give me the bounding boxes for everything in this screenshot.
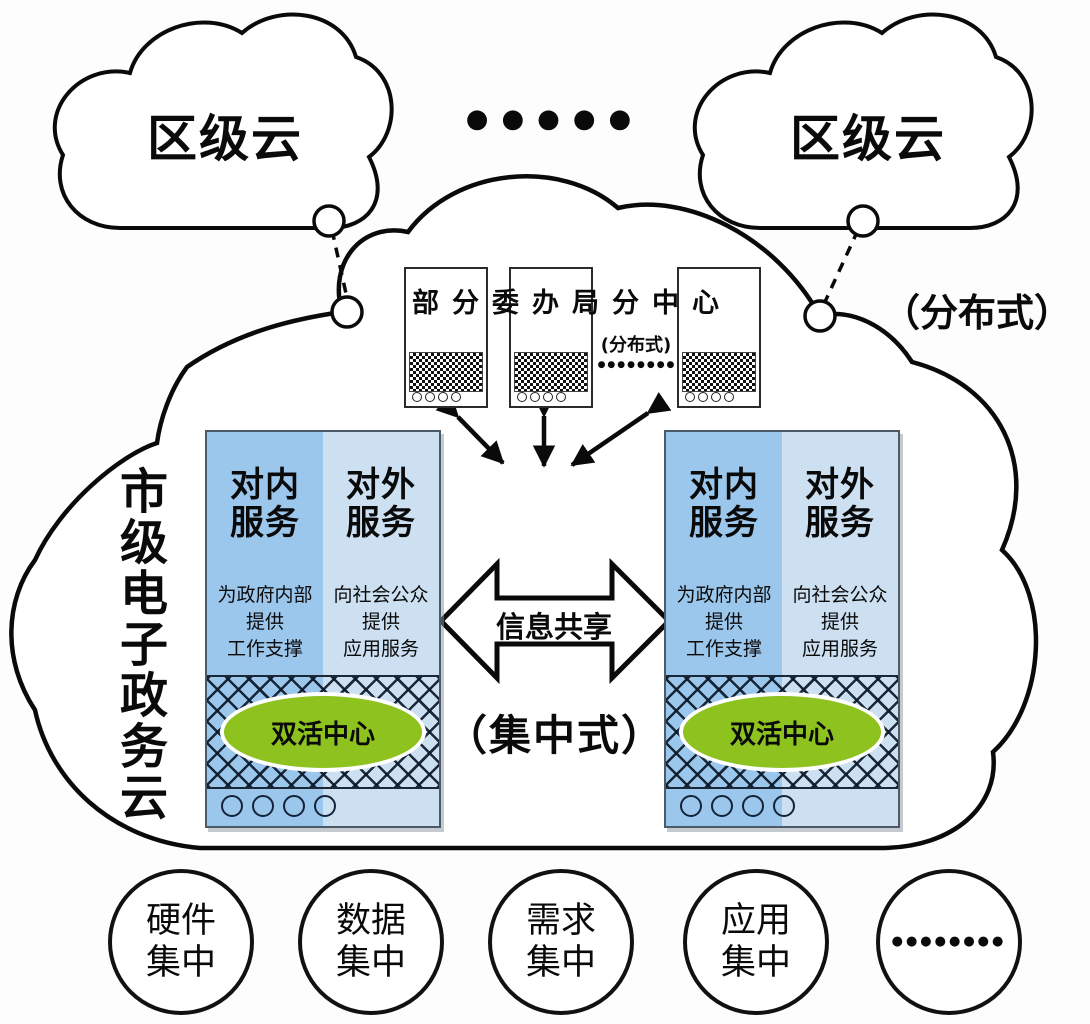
ellipsis-dots: ●●●●●●●● [592, 360, 682, 370]
server-led-dots [517, 392, 566, 402]
server-hatch-band [682, 352, 756, 392]
internal-service-desc: 为政府内部 提供 工作支撑 [207, 582, 323, 663]
ring-circle-icon [283, 795, 305, 817]
dual-active-center-badge: 双活中心 [220, 692, 426, 772]
server-hatch-band [409, 352, 483, 392]
ring-circle-icon [711, 795, 733, 817]
server-led-dots [412, 392, 461, 402]
distributed-outer-label: （分布式） [868, 282, 1086, 337]
subcenter-distributed-label: (分布式) [588, 331, 684, 357]
connector-node [848, 206, 878, 236]
led-circle-icon [556, 392, 566, 402]
connector-node [314, 206, 344, 236]
panel-footer-rings [221, 795, 336, 817]
service-panel-right: 对内 服务 对外 服务 为政府内部 提供 工作支撑 向社会公众 提供 应用服务 … [664, 430, 900, 828]
service-panel-left: 对内 服务 对外 服务 为政府内部 提供 工作支撑 向社会公众 提供 应用服务 … [205, 430, 441, 828]
external-service-title: 对外 服务 [323, 466, 439, 542]
bottom-circle-application: 应用 集中 [683, 869, 829, 1015]
led-circle-icon [711, 392, 721, 402]
server-led-dots [685, 392, 734, 402]
internal-service-title: 对内 服务 [207, 466, 323, 542]
internal-service-desc: 为政府内部 提供 工作支撑 [666, 582, 782, 663]
led-circle-icon [685, 392, 695, 402]
internal-service-title: 对内 服务 [666, 466, 782, 542]
ring-circle-icon [773, 795, 795, 817]
led-circle-icon [530, 392, 540, 402]
subcenter-title: 部分委办局分中心 [402, 281, 742, 320]
external-service-title: 对外 服务 [782, 466, 898, 542]
external-service-desc: 向社会公众 提供 应用服务 [323, 582, 439, 663]
bottom-circle-more: ●●●●●●●● [876, 869, 1022, 1015]
led-circle-icon [698, 392, 708, 402]
led-circle-icon [425, 392, 435, 402]
led-circle-icon [438, 392, 448, 402]
led-circle-icon [517, 392, 527, 402]
ellipsis-dots: ●●●●●●●● [892, 921, 1007, 963]
led-circle-icon [724, 392, 734, 402]
info-share-label: 信息共享 [494, 604, 614, 646]
dashed-link-right [824, 230, 858, 304]
connector-node [805, 301, 835, 331]
bottom-circle-demand: 需求 集中 [488, 869, 634, 1015]
led-circle-icon [543, 392, 553, 402]
ring-circle-icon [252, 795, 274, 817]
ring-circle-icon [742, 795, 764, 817]
bottom-circle-hardware: 硬件 集中 [108, 869, 254, 1015]
dual-active-center-badge: 双活中心 [679, 692, 885, 772]
external-service-desc: 向社会公众 提供 应用服务 [782, 582, 898, 663]
district-cloud-left-label: 区级云 [120, 99, 330, 171]
district-cloud-right-label: 区级云 [763, 99, 973, 171]
ring-circle-icon [314, 795, 336, 817]
city-cloud-label: 市级电子政务云 [104, 466, 174, 828]
panel-hatch-band: 双活中心 [666, 675, 898, 789]
server-hatch-band [514, 352, 588, 392]
led-circle-icon [451, 392, 461, 402]
ellipsis-dots: ●●●●● [455, 104, 655, 134]
diagram-canvas: 区级云 区级云 ●●●●● （分布式） 部分委办局分中心 (分布式) ●●●●●… [0, 0, 1090, 1024]
panel-footer-rings [680, 795, 795, 817]
bottom-circle-data: 数据 集中 [298, 869, 444, 1015]
centralized-label: （集中式） [436, 702, 674, 763]
connector-node [332, 297, 362, 327]
ring-circle-icon [221, 795, 243, 817]
ring-circle-icon [680, 795, 702, 817]
panel-hatch-band: 双活中心 [207, 675, 439, 789]
led-circle-icon [412, 392, 422, 402]
